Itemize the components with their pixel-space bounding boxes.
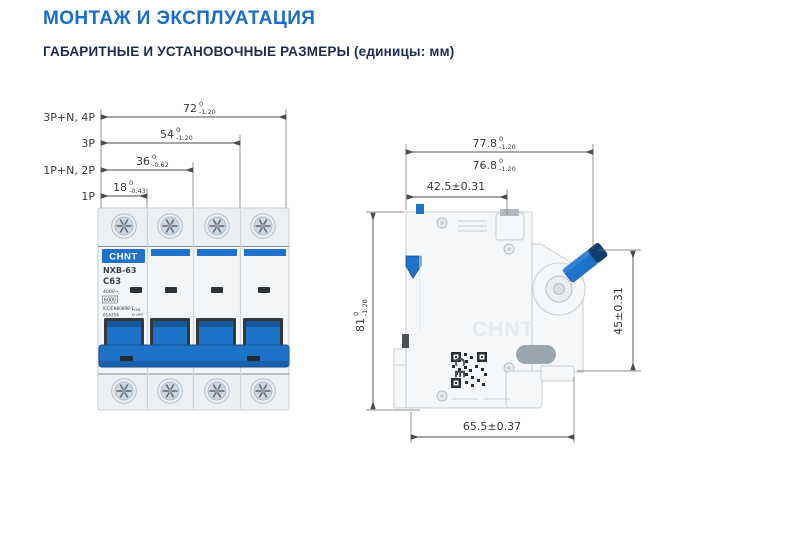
dim-value: 65.5±0.37	[463, 420, 521, 433]
model-label: NXB-63	[103, 266, 136, 275]
indicator-window	[211, 287, 223, 293]
din-clip-lower	[402, 334, 409, 348]
indicator-window	[130, 287, 142, 293]
dim-value: 54	[160, 128, 174, 141]
dim-upper-tol: 0	[152, 153, 156, 161]
dim-value: 18	[113, 181, 127, 194]
pole-blue-bar	[151, 249, 190, 256]
pole-config-label: 3P+N, 4P	[43, 111, 95, 124]
capacity-label: 6000	[104, 297, 116, 303]
din-clip-top	[416, 204, 424, 214]
dim-upper-tol: 0	[352, 312, 360, 316]
dim-lower-tol: -1.20	[361, 299, 369, 316]
side-view: CHNT CE	[352, 135, 641, 443]
screw-terminal	[112, 214, 137, 239]
pole-blue-bar	[197, 249, 237, 256]
indicator-window	[258, 287, 270, 293]
page: МОНТАЖ И ЭКСПЛУАТАЦИЯ ГАБАРИТНЫЕ И УСТАН…	[0, 0, 785, 538]
rivet	[437, 391, 447, 401]
front-dimension-36: 36 0 -0.62 1P+N, 2P	[43, 153, 193, 177]
dim-lower-tol: -1.20	[499, 165, 516, 173]
dim-value: 42.5±0.31	[427, 180, 485, 193]
dim-lower-tol: -1.20	[199, 108, 216, 116]
pole-config-label: 1P+N, 2P	[43, 164, 95, 177]
pole-config-label: 3P	[81, 137, 95, 150]
dim-upper-tol: 0	[176, 126, 180, 134]
terminal-cap	[500, 209, 519, 216]
dim-lower-tol: -0.43	[129, 187, 146, 195]
svg-text:CE: CE	[451, 357, 466, 381]
dim-value: 72	[183, 102, 197, 115]
dim-upper-tol: 0	[499, 135, 503, 143]
screw-terminal	[205, 214, 230, 239]
dim-upper-tol: 0	[499, 157, 503, 165]
breaker-front-body: CHNT NXB-63 C63 400V~ 6000 IEC/EN60898-1…	[98, 208, 289, 410]
brand-logo-text: CHNT	[109, 252, 137, 263]
molded-watermark: CHNT	[472, 318, 534, 341]
voltage-label: 400V~	[103, 289, 119, 295]
off-label: O OFF	[132, 312, 144, 317]
dimension-drawing: 72 0 -1.20 3P+N, 4P 54 0 -1.20 3P 36 0 -…	[0, 0, 785, 538]
front-dimension-54: 54 0 -1.20 3P	[81, 126, 240, 150]
dim-value: 45±0.31	[612, 287, 625, 335]
front-dimension-72: 72 0 -1.20 3P+N, 4P	[43, 100, 286, 124]
dim-value: 81	[354, 318, 367, 332]
standard-label: IEC/EN60898-1	[103, 306, 134, 311]
pole-blue-bar	[244, 249, 286, 256]
indicator-window	[165, 287, 177, 293]
dim-upper-tol: 0	[199, 100, 203, 108]
dim-lower-tol: -1.20	[176, 134, 193, 142]
screw-terminal	[112, 379, 137, 404]
dim-value: 76.8	[473, 159, 498, 172]
ce-mark: CE	[451, 357, 466, 381]
rating-label: C63	[103, 277, 121, 287]
dim-lower-tol: -1.20	[499, 143, 516, 151]
bottom-terminal-block	[506, 371, 542, 408]
tie-bar-mark	[247, 356, 260, 361]
label-window-oval	[516, 345, 556, 364]
code-label: 61A254	[103, 313, 119, 318]
screw-terminal	[158, 214, 183, 239]
front-view: 72 0 -1.20 3P+N, 4P 54 0 -1.20 3P 36 0 -…	[43, 100, 289, 410]
dim-value: 36	[136, 155, 150, 168]
rivet	[504, 244, 514, 254]
dim-lower-tol: -0.62	[152, 161, 169, 169]
top-terminal-block	[496, 213, 524, 240]
screw-terminal	[158, 379, 183, 404]
rivet	[437, 218, 447, 228]
pole-config-label: 1P	[81, 190, 95, 203]
screw-terminal	[205, 379, 230, 404]
dim-upper-tol: 0	[129, 179, 133, 187]
front-dimension-18: 18 0 -0.43 1P	[81, 179, 147, 203]
screw-terminal	[251, 379, 276, 404]
dim-value: 77.8	[473, 137, 498, 150]
front-step	[541, 366, 574, 381]
tie-bar-mark	[120, 356, 133, 361]
screw-terminal	[251, 214, 276, 239]
breaker-side-body: CHNT CE	[394, 204, 609, 408]
